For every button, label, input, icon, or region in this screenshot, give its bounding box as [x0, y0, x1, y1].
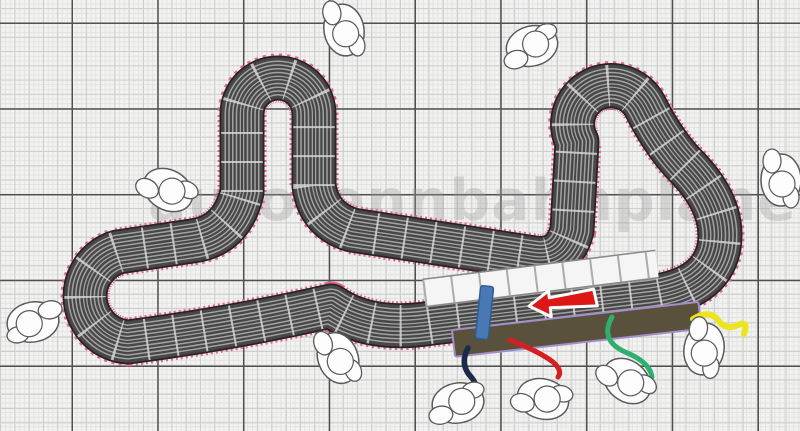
- tree[interactable]: [319, 0, 369, 61]
- tree[interactable]: [424, 378, 489, 428]
- tree[interactable]: [131, 157, 202, 221]
- layout-svg: [0, 0, 800, 431]
- tree[interactable]: [761, 149, 800, 208]
- tree[interactable]: [508, 372, 575, 426]
- track-planner-canvas[interactable]: autorennbahnplaner: [0, 0, 800, 431]
- tree[interactable]: [590, 346, 661, 415]
- tree[interactable]: [497, 19, 564, 73]
- tree[interactable]: [2, 297, 67, 347]
